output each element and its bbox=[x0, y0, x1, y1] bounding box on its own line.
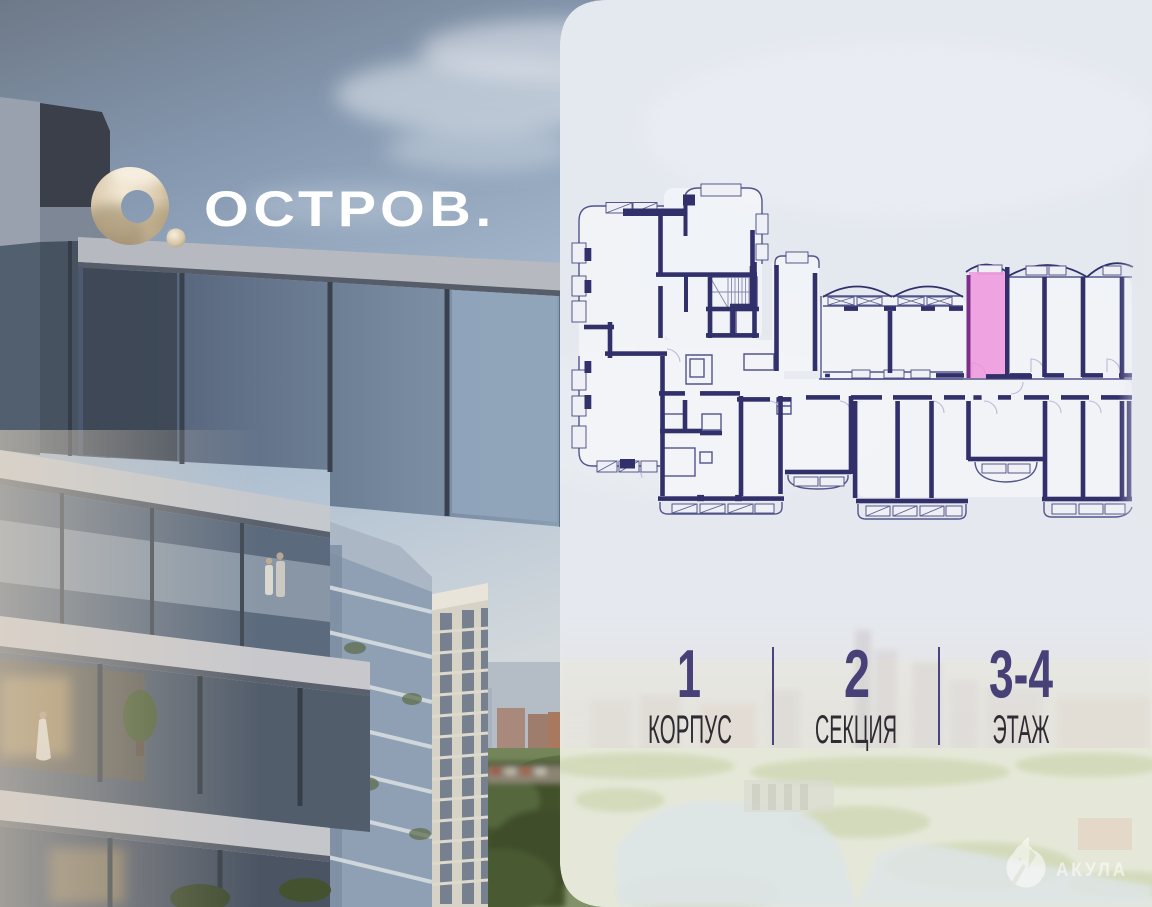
svg-text:КОРПУС: КОРПУС bbox=[648, 708, 732, 752]
svg-text:СЕКЦИЯ: СЕКЦИЯ bbox=[815, 708, 897, 752]
svg-text:ОСТРОВ.: ОСТРОВ. bbox=[204, 181, 496, 237]
svg-text:АКУЛА: АКУЛА bbox=[1056, 860, 1128, 881]
svg-text:3-4: 3-4 bbox=[989, 636, 1053, 712]
svg-text:1: 1 bbox=[677, 636, 701, 712]
svg-text:2: 2 bbox=[844, 636, 870, 712]
svg-text:ЭТАЖ: ЭТАЖ bbox=[993, 708, 1050, 752]
